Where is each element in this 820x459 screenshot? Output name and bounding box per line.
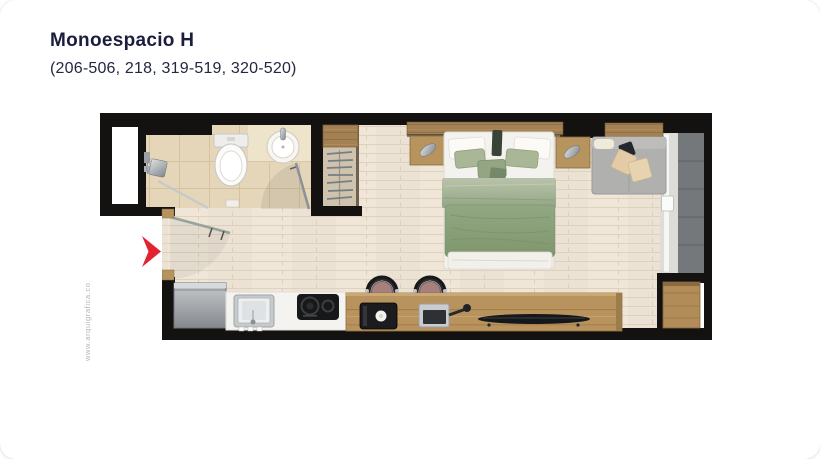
wardrobe-shelf-icon (323, 125, 358, 147)
sofa-bolster (594, 139, 614, 149)
entry-door-frame-bottom (162, 270, 174, 280)
wall-top-mid-column (560, 113, 608, 138)
toilet-icon (214, 134, 248, 186)
nightstand-left (410, 136, 444, 165)
floorplan-card: Monoespacio H (206-506, 218, 319-519, 32… (0, 0, 820, 459)
bar-counter-edge (346, 293, 622, 296)
nightstand-right (556, 137, 590, 168)
floorplan-image (0, 0, 820, 459)
sofa-shelf-icon (605, 123, 663, 138)
throw-runner-dark (492, 130, 503, 156)
folded-blanket (442, 178, 556, 208)
double-bed-icon (442, 130, 556, 269)
bathroom-window (112, 127, 138, 204)
wall-closet-bottom (311, 206, 362, 216)
bath-mat-icon (226, 200, 239, 207)
sofa-with-cushions-icon (592, 137, 666, 194)
entry-door-frame-top (162, 209, 174, 218)
fridge-icon (174, 283, 226, 328)
kitchen-sink-icon (234, 295, 274, 331)
coffee-machine-icon (360, 303, 397, 329)
balcony (660, 133, 704, 273)
exterior-area (92, 216, 162, 340)
pillow-green-right (505, 149, 538, 169)
wall-cabinet-left (657, 273, 663, 333)
wall-bathroom-closet-divider (311, 113, 323, 216)
bar-counter-end (616, 293, 622, 331)
wall-balcony-bottom (657, 273, 712, 283)
door-handle-icon (662, 196, 674, 211)
side-cabinet-icon (663, 282, 700, 328)
cooktop-icon (297, 294, 339, 320)
wall-right (704, 113, 712, 340)
duvet-green (445, 205, 555, 257)
balcony-tiles (678, 133, 704, 273)
